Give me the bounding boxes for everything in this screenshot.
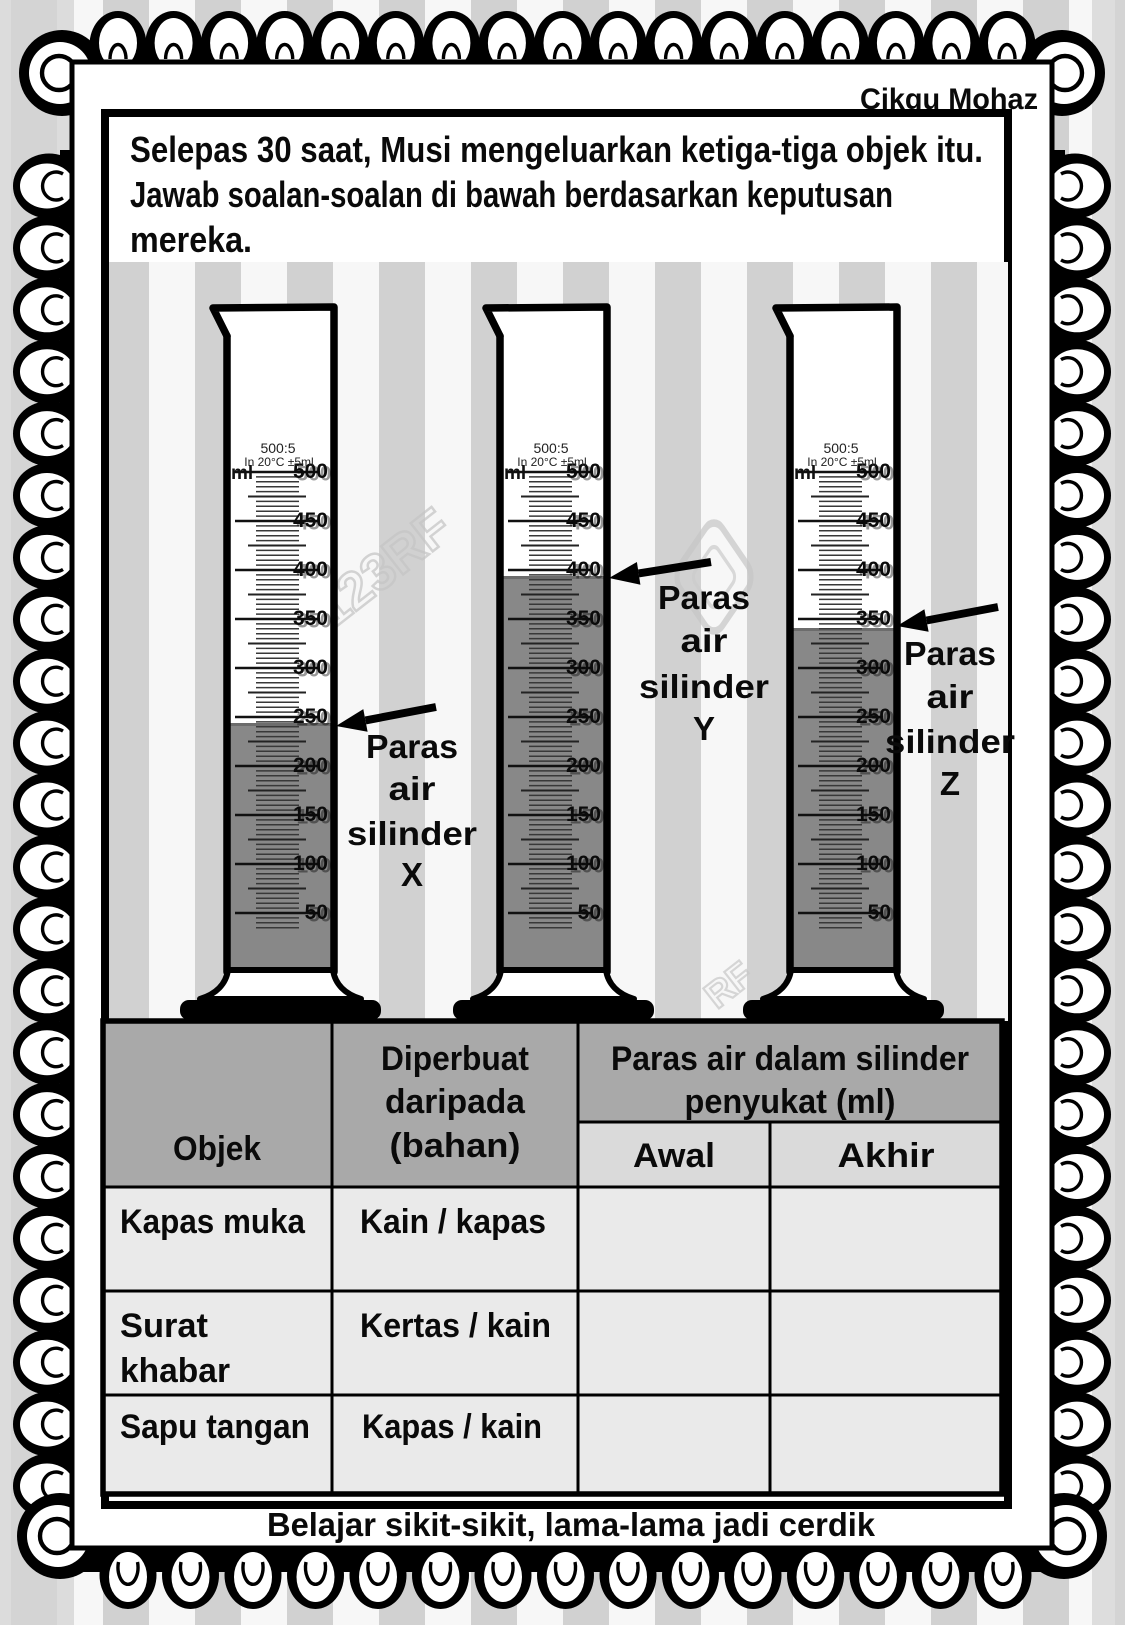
svg-text:Sapu tangan: Sapu tangan bbox=[120, 1408, 310, 1446]
svg-text:Awal: Awal bbox=[633, 1137, 715, 1175]
svg-text:air: air bbox=[389, 770, 436, 807]
svg-text:Selepas 30 saat, Musi mengelua: Selepas 30 saat, Musi mengeluarkan ketig… bbox=[130, 129, 983, 170]
svg-text:Surat: Surat bbox=[120, 1307, 208, 1345]
svg-text:Y: Y bbox=[693, 710, 715, 747]
svg-text:Diperbuat: Diperbuat bbox=[381, 1040, 529, 1078]
svg-text:Jawab soalan-soalan di bawah b: Jawab soalan-soalan di bawah berdasarkan… bbox=[130, 174, 893, 215]
svg-text:(bahan): (bahan) bbox=[390, 1127, 521, 1165]
svg-text:air: air bbox=[927, 678, 974, 715]
svg-text:penyukat (ml): penyukat (ml) bbox=[685, 1083, 896, 1121]
svg-text:Kapas / kain: Kapas / kain bbox=[362, 1408, 542, 1446]
svg-text:Akhir: Akhir bbox=[838, 1137, 935, 1175]
svg-text:khabar: khabar bbox=[120, 1352, 230, 1390]
svg-text:Paras: Paras bbox=[904, 635, 996, 672]
svg-text:daripada: daripada bbox=[385, 1083, 526, 1121]
svg-text:Belajar sikit-sikit, lama-lama: Belajar sikit-sikit, lama-lama jadi cerd… bbox=[267, 1506, 876, 1543]
svg-text:Kertas / kain: Kertas / kain bbox=[360, 1307, 551, 1345]
svg-text:air: air bbox=[681, 622, 728, 659]
svg-text:Paras: Paras bbox=[366, 728, 458, 765]
svg-text:Kain / kapas: Kain / kapas bbox=[360, 1203, 546, 1241]
svg-text:Paras: Paras bbox=[658, 579, 750, 616]
svg-text:Z: Z bbox=[940, 765, 960, 802]
svg-text:X: X bbox=[401, 856, 423, 893]
svg-text:Kapas muka: Kapas muka bbox=[120, 1203, 306, 1241]
svg-text:Objek: Objek bbox=[173, 1130, 261, 1168]
svg-text:silinder: silinder bbox=[347, 815, 477, 852]
svg-text:silinder: silinder bbox=[885, 723, 1015, 760]
svg-text:silinder: silinder bbox=[639, 668, 769, 705]
svg-text:Paras air dalam silinder: Paras air dalam silinder bbox=[611, 1040, 969, 1078]
svg-text:mereka.: mereka. bbox=[130, 219, 252, 260]
